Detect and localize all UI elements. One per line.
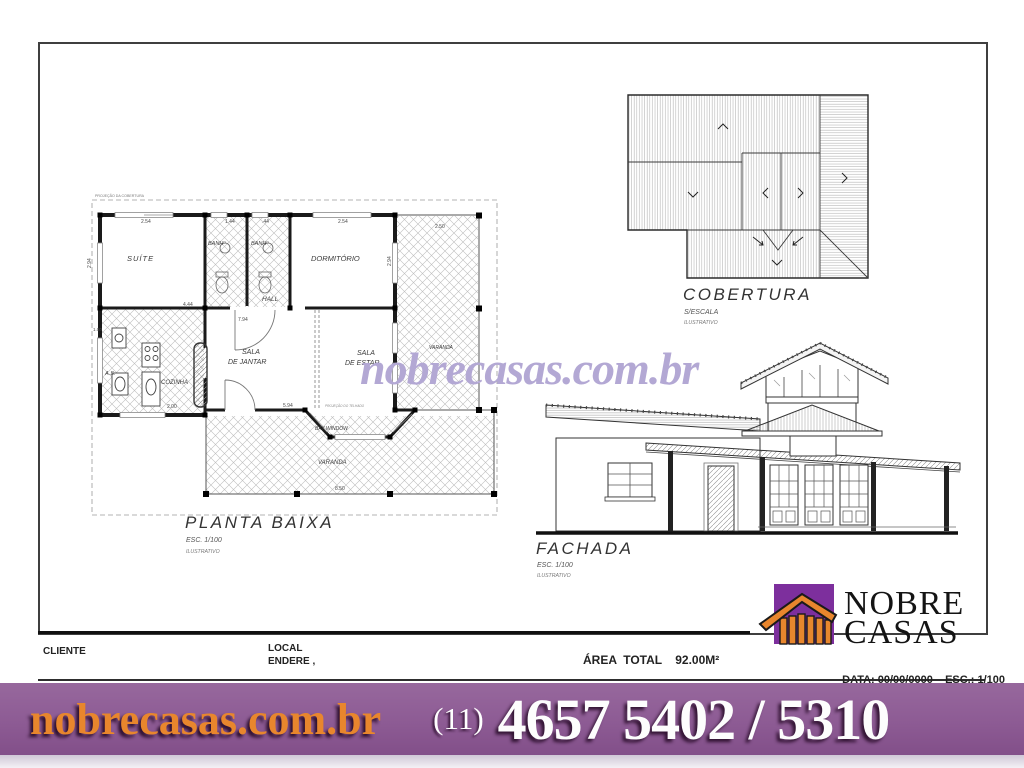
titleblock-cliente: CLIENTE — [43, 646, 86, 657]
dim-side-left: 2.94 — [87, 258, 93, 268]
titleblock-endereco: ENDERE , — [268, 656, 315, 667]
label-suite: SUÍTE — [127, 254, 154, 263]
sheet-bottom-border — [38, 631, 750, 634]
dim-top-suite: 2.54 — [141, 219, 151, 225]
label-cozinha: COZINHA — [161, 380, 188, 386]
footer-bottom-strip — [0, 755, 1024, 768]
dim-bottom-varanda: 8.50 — [335, 486, 345, 492]
label-sala-jantar-2: DE JANTAR — [228, 359, 266, 366]
titleblock-area-total: ÁREA TOTAL 92.00M² — [583, 653, 719, 667]
logo-word-casas: CASAS — [844, 618, 964, 647]
salas-division-dashed — [315, 310, 319, 408]
label-banho-2: BANHº — [251, 240, 269, 247]
facade-scale: ESC. 1/100 — [537, 562, 573, 569]
dim-bottom-sala: 5.94 — [283, 403, 293, 409]
dim-top-banho2: .44 — [262, 219, 269, 225]
label-sala-jantar-1: SALA — [242, 349, 260, 356]
roof-note: ILUSTRATIVO — [684, 320, 718, 326]
dim-top-dorm: 2.54 — [338, 219, 348, 225]
dim-side-right: 2.94 — [387, 256, 393, 266]
footer-phone-numbers: 4657 5402 / 5310 — [498, 686, 890, 753]
label-roof-edge-note: PROJEÇÃO DO TELHADO — [325, 403, 365, 408]
label-banho-1: BANHº — [208, 240, 226, 247]
watermark-text: nobrecasas.com.br — [360, 342, 698, 395]
facade-door — [704, 463, 738, 531]
footer-area-code: (11) — [433, 701, 484, 737]
facade-note: ILUSTRATIVO — [537, 573, 571, 579]
label-area-servico: A.S. — [104, 371, 115, 377]
titleblock-local: LOCAL — [268, 643, 302, 654]
facade-title: FACHADA — [536, 539, 633, 558]
label-hall: HALL — [262, 296, 279, 303]
label-varanda-bottom: VARANDA — [318, 460, 347, 466]
nobre-casas-logo: NOBRE CASAS — [758, 582, 1014, 654]
dim-mid-suite: 4.44 — [183, 302, 193, 308]
dim-top-banho1: 1.44 — [225, 219, 235, 225]
dim-left-small: 1.00 — [93, 327, 102, 332]
label-dormitorio: DORMITÓRIO — [311, 254, 360, 263]
plan-note: ILUSTRATIVO — [186, 549, 220, 555]
facade-tower — [741, 343, 888, 456]
footer-banner: nobrecasas.com.br (11) 4657 5402 / 5310 — [0, 683, 1024, 755]
roof-scale: S/ESCALA — [684, 309, 719, 316]
logo-wordmark: NOBRE CASAS — [844, 589, 964, 647]
nobre-casas-logo-icon — [758, 582, 840, 654]
label-bay-window: BAY WINDOW — [315, 426, 349, 432]
dim-bottom-kitchen: 2.00 — [167, 404, 177, 410]
plan-scale: ESC. 1/100 — [186, 537, 222, 544]
facade-windows — [770, 465, 868, 525]
plan-title: PLANTA BAIXA — [185, 513, 334, 532]
roof-title: COBERTURA — [683, 285, 812, 304]
roof-projection-note: PROJEÇÃO DA COBERTURA — [95, 193, 145, 198]
dim-mid-total: 7.94 — [238, 317, 248, 323]
roof-surfaces — [628, 95, 868, 278]
footer-website: nobrecasas.com.br — [30, 694, 381, 745]
roof-plan-drawing: COBERTURA S/ESCALA ILUSTRATIVO — [615, 85, 880, 330]
dim-top-varanda: 2.50 — [435, 224, 445, 230]
